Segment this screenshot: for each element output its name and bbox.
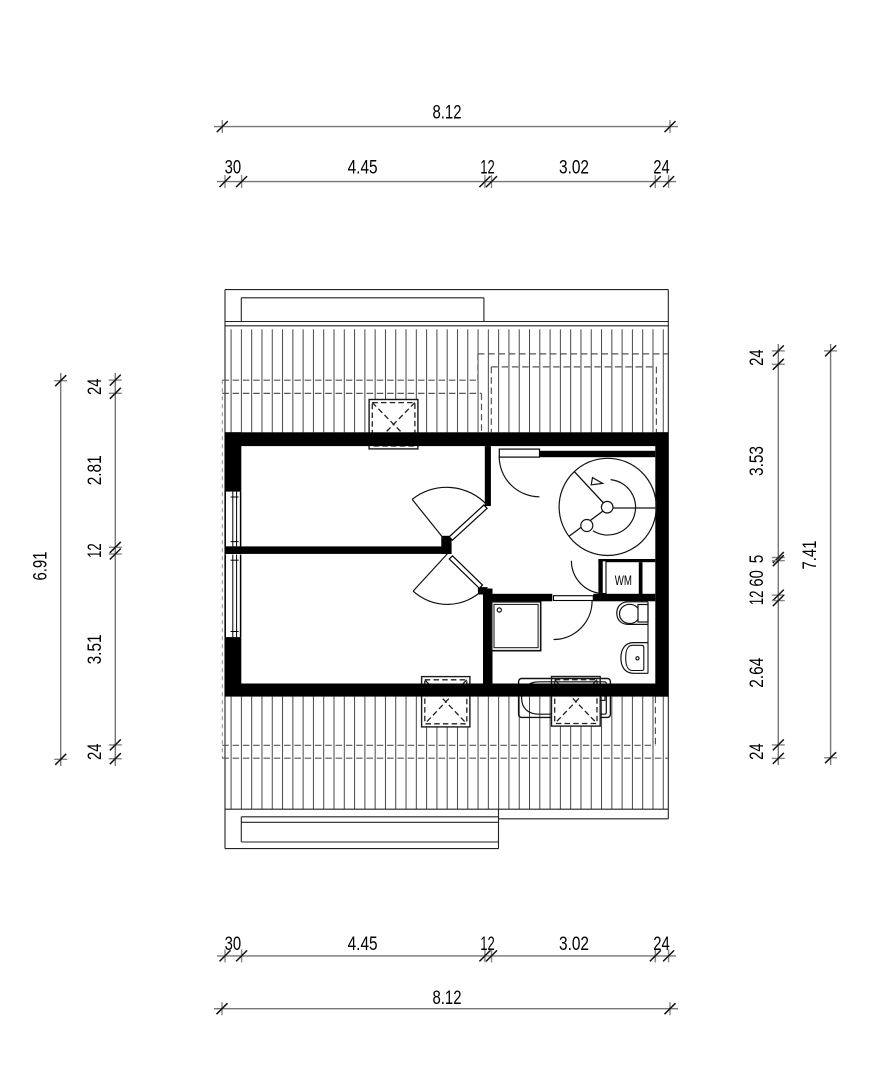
svg-text:7.41: 7.41: [800, 541, 821, 570]
svg-text:5: 5: [747, 555, 768, 564]
svg-text:WM: WM: [615, 572, 632, 588]
svg-text:8.12: 8.12: [433, 103, 462, 124]
svg-text:12: 12: [480, 934, 495, 955]
svg-text:60: 60: [747, 570, 768, 587]
svg-text:3.02: 3.02: [559, 158, 589, 179]
svg-text:2.64: 2.64: [747, 657, 768, 687]
svg-text:30: 30: [225, 158, 242, 179]
svg-text:12: 12: [747, 591, 768, 606]
svg-text:4.45: 4.45: [348, 158, 378, 179]
svg-text:12: 12: [85, 543, 106, 558]
svg-text:12: 12: [480, 158, 495, 179]
svg-text:24: 24: [653, 158, 670, 179]
svg-text:24: 24: [85, 743, 106, 760]
svg-text:4.45: 4.45: [348, 934, 378, 955]
svg-text:24: 24: [747, 743, 768, 760]
svg-text:2.81: 2.81: [85, 455, 106, 485]
svg-text:6.91: 6.91: [31, 552, 52, 581]
svg-text:24: 24: [747, 349, 768, 366]
svg-text:8.12: 8.12: [433, 988, 462, 1009]
svg-text:24: 24: [653, 934, 670, 955]
svg-text:24: 24: [85, 378, 106, 395]
svg-text:3.53: 3.53: [747, 446, 768, 476]
svg-text:3.51: 3.51: [85, 634, 106, 664]
svg-text:30: 30: [225, 934, 242, 955]
svg-text:3.02: 3.02: [559, 934, 589, 955]
